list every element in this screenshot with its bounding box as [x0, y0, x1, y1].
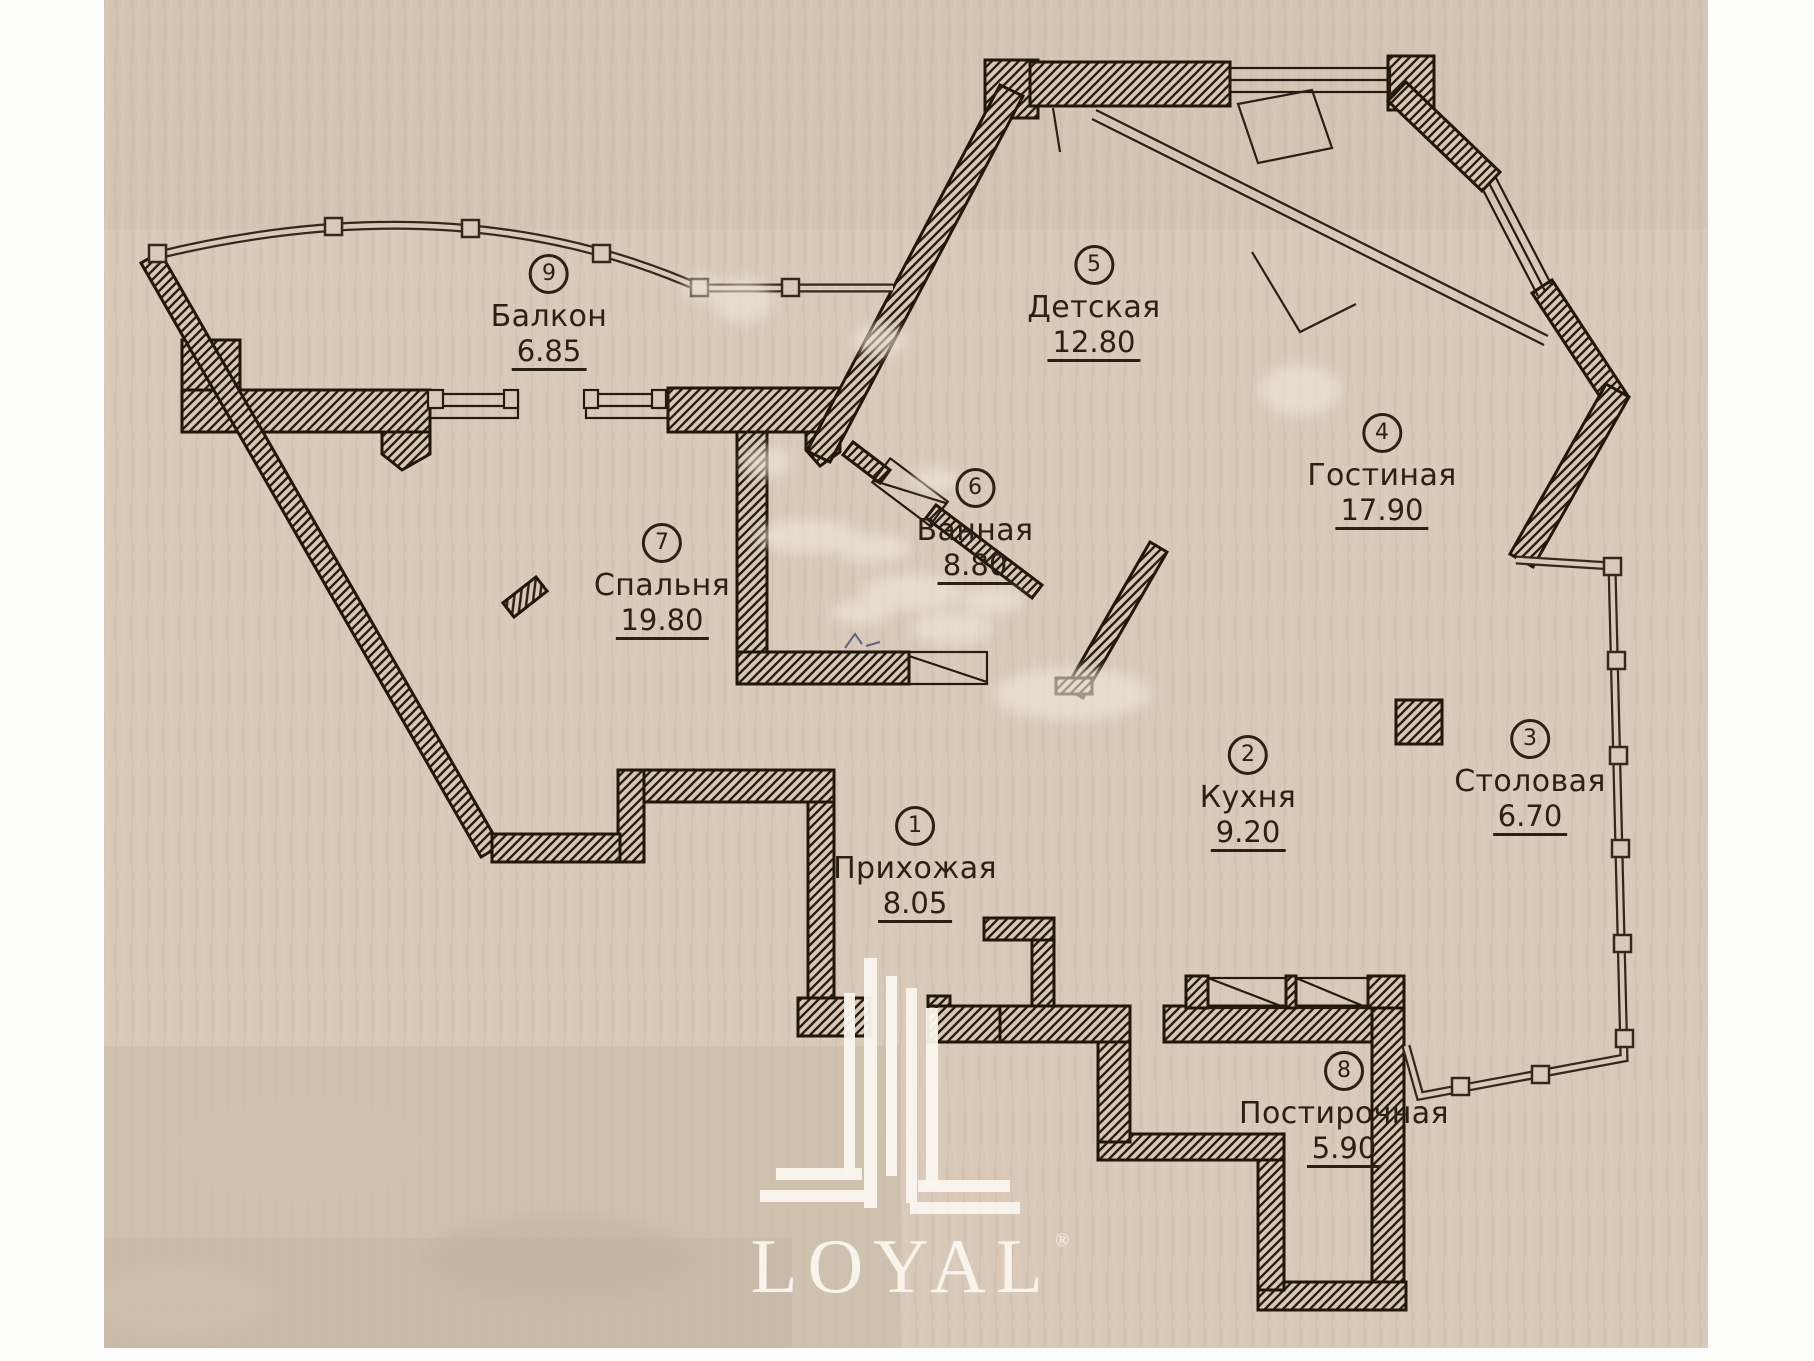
room-number-badge: 6 [955, 468, 995, 508]
room-number-badge: 9 [529, 254, 569, 294]
room-number-badge: 7 [642, 523, 682, 563]
room-number-badge: 2 [1228, 735, 1268, 775]
room-area: 5.90 [1307, 1133, 1382, 1168]
room-label-laundry: 8 Постирочная 5.90 [1239, 1051, 1449, 1168]
room-number-badge: 3 [1510, 719, 1550, 759]
room-number-badge: 8 [1324, 1051, 1364, 1091]
room-name: Постирочная [1239, 1098, 1449, 1130]
room-number-badge: 1 [895, 806, 935, 846]
room-name: Кухня [1200, 782, 1296, 814]
room-label-dining: 3 Столовая 6.70 [1454, 719, 1606, 836]
column-dining [1396, 700, 1442, 744]
room-area: 12.80 [1047, 327, 1140, 362]
room-label-kitchen: 2 Кухня 9.20 [1200, 735, 1296, 852]
room-name: Прихожая [833, 853, 997, 885]
room-area: 6.70 [1493, 801, 1568, 836]
watermark-tower-icon [760, 958, 1020, 1226]
room-label-living: 4 Гостиная 17.90 [1307, 413, 1456, 530]
room-area: 6.85 [512, 336, 587, 371]
room-area: 17.90 [1335, 495, 1428, 530]
registered-mark: ® [1055, 1230, 1069, 1251]
room-area: 19.80 [615, 605, 708, 640]
room-label-balcony: 9 Балкон 6.85 [491, 254, 608, 371]
room-number-badge: 4 [1362, 413, 1402, 453]
room-number-badge: 5 [1074, 245, 1114, 285]
watermark: LOYAL® [700, 950, 1120, 1330]
room-label-bathroom: 6 Ванная 8.80 [916, 468, 1033, 585]
room-label-kids: 5 Детская 12.80 [1027, 245, 1160, 362]
room-name: Гостиная [1307, 460, 1456, 492]
room-label-hallway: 1 Прихожая 8.05 [833, 806, 997, 923]
watermark-text: LOYAL® [700, 1228, 1120, 1305]
room-name: Спальня [594, 570, 730, 602]
room-name: Столовая [1454, 766, 1606, 798]
room-label-bedroom: 7 Спальня 19.80 [594, 523, 730, 640]
floor-plan-page: 1 Прихожая 8.05 2 Кухня 9.20 3 Столовая … [0, 0, 1814, 1361]
room-area: 9.20 [1211, 817, 1286, 852]
room-area: 8.05 [878, 888, 953, 923]
room-name: Балкон [491, 301, 608, 333]
room-area: 8.80 [938, 550, 1013, 585]
room-name: Детская [1027, 292, 1160, 324]
room-name: Ванная [916, 515, 1033, 547]
